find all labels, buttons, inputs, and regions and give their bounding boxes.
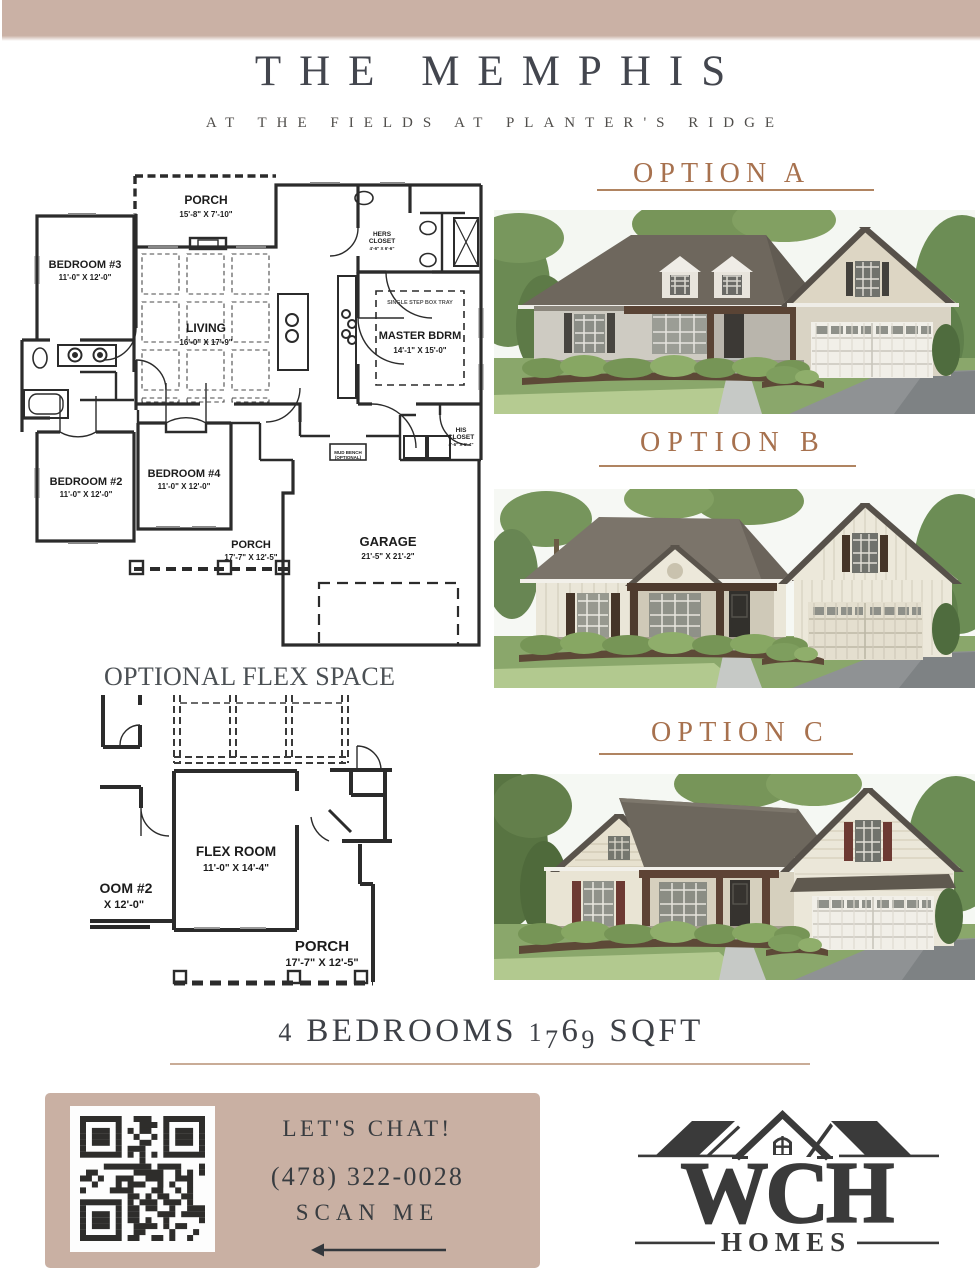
svg-text:14'-1" X 15'-0": 14'-1" X 15'-0" xyxy=(393,346,446,355)
svg-text:HERS: HERS xyxy=(373,231,392,238)
svg-text:11'-0" X 14'-4": 11'-0" X 14'-4" xyxy=(203,863,269,874)
svg-text:MASTER BDRM: MASTER BDRM xyxy=(379,330,462,342)
svg-text:CLOSET: CLOSET xyxy=(369,238,395,245)
svg-text:GARAGE: GARAGE xyxy=(359,534,416,549)
svg-text:11'-0" X 12'-0": 11'-0" X 12'-0" xyxy=(59,273,112,282)
svg-text:16'-0" X 17'-9": 16'-0" X 17'-9" xyxy=(179,338,232,347)
svg-text:LIVING: LIVING xyxy=(186,321,226,335)
svg-text:(OPTIONAL): (OPTIONAL) xyxy=(335,455,362,460)
svg-text:15'-8" X 7'-10": 15'-8" X 7'-10" xyxy=(179,210,232,219)
svg-text:BEDROOM #2: BEDROOM #2 xyxy=(50,476,123,488)
svg-text:11'-0" X 12'-0": 11'-0" X 12'-0" xyxy=(158,482,211,491)
svg-text:PORCH: PORCH xyxy=(295,938,349,955)
svg-text:4'-6" X 6'-6": 4'-6" X 6'-6" xyxy=(370,246,395,251)
svg-text:BEDROOM #3: BEDROOM #3 xyxy=(49,259,122,271)
svg-text:21'-5" X 21'-2": 21'-5" X 21'-2" xyxy=(361,552,414,561)
svg-text:17'-7" X 12'-5": 17'-7" X 12'-5" xyxy=(285,957,358,969)
svg-text:CLOSET: CLOSET xyxy=(448,434,474,441)
svg-text:HOMES: HOMES xyxy=(721,1227,851,1257)
svg-text:17'-7" X 12'-5": 17'-7" X 12'-5" xyxy=(224,553,277,562)
svg-text:OOM #2: OOM #2 xyxy=(100,880,153,896)
svg-text:SINGLE STEP BOX TRAY: SINGLE STEP BOX TRAY xyxy=(387,300,453,306)
svg-text:BEDROOM #4: BEDROOM #4 xyxy=(148,468,222,480)
svg-text:4'-6" X 6'-4": 4'-6" X 6'-4" xyxy=(449,442,474,447)
svg-text:PORCH: PORCH xyxy=(184,193,227,207)
svg-text:HIS: HIS xyxy=(456,427,468,434)
svg-text:X 12'-0": X 12'-0" xyxy=(104,899,144,911)
svg-text:FLEX ROOM: FLEX ROOM xyxy=(196,844,276,859)
svg-text:PORCH: PORCH xyxy=(231,539,271,551)
svg-text:11'-0" X 12'-0": 11'-0" X 12'-0" xyxy=(60,490,113,499)
